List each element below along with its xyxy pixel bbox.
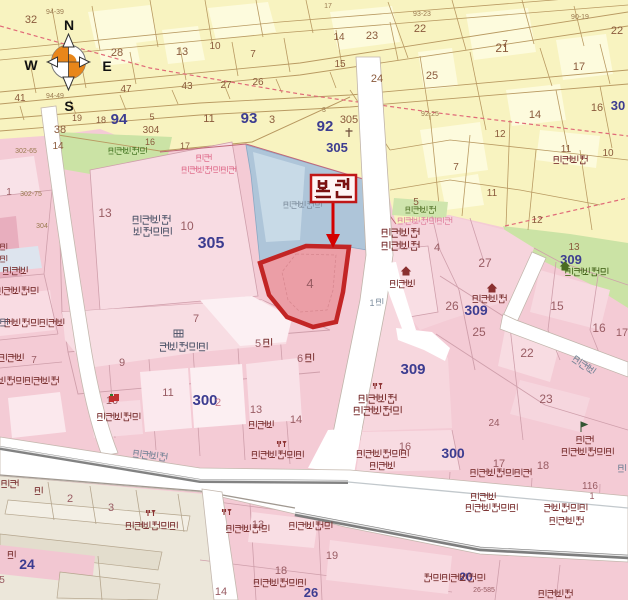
svg-text:22: 22 [414, 23, 426, 35]
svg-text:302-75: 302-75 [20, 191, 42, 198]
svg-text:3: 3 [322, 107, 326, 114]
svg-text:26: 26 [445, 299, 459, 313]
svg-text:300: 300 [192, 392, 217, 409]
svg-text:24: 24 [488, 418, 500, 429]
svg-text:18: 18 [275, 565, 287, 577]
svg-text:2: 2 [215, 397, 221, 409]
svg-text:23: 23 [366, 30, 378, 42]
svg-text:305: 305 [198, 235, 225, 252]
svg-text:24: 24 [19, 556, 35, 572]
svg-text:17: 17 [324, 3, 332, 10]
svg-text:13: 13 [250, 404, 262, 416]
svg-text:16: 16 [592, 321, 606, 335]
svg-text:11: 11 [162, 387, 173, 399]
svg-text:11: 11 [561, 144, 572, 155]
svg-text:2: 2 [67, 493, 73, 505]
svg-text:304: 304 [143, 125, 160, 136]
svg-text:17: 17 [180, 141, 190, 151]
svg-text:5: 5 [0, 575, 5, 586]
svg-text:309: 309 [400, 361, 425, 378]
svg-text:41: 41 [14, 93, 26, 104]
svg-text:26: 26 [252, 77, 264, 88]
svg-text:14: 14 [52, 141, 64, 152]
svg-text:32: 32 [25, 14, 37, 26]
svg-text:25: 25 [472, 325, 486, 339]
svg-text:12: 12 [494, 129, 506, 140]
svg-text:43: 43 [181, 81, 193, 92]
svg-text:16: 16 [145, 137, 155, 147]
svg-text:6: 6 [297, 353, 303, 365]
svg-text:9: 9 [119, 357, 125, 369]
svg-text:38: 38 [54, 124, 66, 136]
svg-text:94-49: 94-49 [46, 93, 64, 100]
svg-text:26-585: 26-585 [473, 587, 495, 594]
svg-text:92-25: 92-25 [421, 111, 439, 118]
svg-text:13: 13 [98, 206, 112, 220]
svg-text:1: 1 [589, 491, 594, 501]
svg-text:7: 7 [193, 313, 199, 325]
svg-text:7: 7 [31, 355, 37, 366]
svg-text:17: 17 [616, 327, 628, 339]
svg-text:12: 12 [531, 215, 543, 226]
svg-text:13: 13 [176, 46, 188, 58]
svg-text:5: 5 [413, 197, 419, 208]
svg-text:W: W [24, 57, 38, 73]
svg-text:3: 3 [269, 114, 275, 126]
svg-text:19: 19 [72, 113, 82, 123]
svg-text:7: 7 [453, 162, 459, 173]
svg-text:22: 22 [520, 346, 534, 360]
svg-text:11: 11 [487, 188, 498, 199]
svg-text:92: 92 [317, 118, 334, 135]
svg-text:304: 304 [36, 223, 48, 230]
svg-text:16: 16 [399, 441, 411, 453]
svg-text:10: 10 [180, 219, 194, 233]
svg-text:16: 16 [591, 102, 603, 114]
svg-text:14: 14 [290, 414, 302, 426]
svg-text:90-19: 90-19 [571, 14, 589, 21]
svg-text:S: S [64, 98, 73, 114]
svg-text:N: N [64, 17, 74, 33]
svg-text:5: 5 [255, 338, 261, 350]
svg-text:93: 93 [241, 110, 258, 127]
svg-text:17: 17 [493, 458, 505, 470]
svg-text:94: 94 [111, 111, 128, 128]
svg-text:5: 5 [149, 112, 154, 122]
svg-text:94-39: 94-39 [46, 9, 64, 16]
svg-text:22: 22 [611, 25, 623, 37]
svg-text:17: 17 [573, 61, 585, 73]
svg-text:305: 305 [326, 140, 348, 155]
svg-text:10: 10 [209, 41, 221, 52]
svg-text:7: 7 [250, 49, 256, 60]
svg-text:7: 7 [502, 39, 508, 50]
svg-text:18: 18 [96, 115, 106, 125]
svg-text:24: 24 [371, 73, 383, 85]
svg-text:47: 47 [120, 84, 132, 95]
svg-text:18: 18 [537, 460, 549, 472]
svg-text:309: 309 [464, 302, 488, 318]
svg-text:14: 14 [215, 586, 227, 598]
svg-text:E: E [102, 58, 111, 74]
svg-text:25: 25 [426, 70, 438, 82]
svg-text:15: 15 [550, 299, 564, 313]
svg-text:26: 26 [304, 585, 318, 600]
svg-text:13: 13 [568, 242, 580, 253]
svg-text:1: 1 [6, 187, 12, 198]
svg-text:15: 15 [334, 59, 346, 70]
svg-text:1: 1 [369, 298, 374, 308]
svg-text:93-23: 93-23 [413, 11, 431, 18]
svg-text:4: 4 [434, 242, 440, 254]
svg-text:27: 27 [478, 256, 492, 270]
svg-text:10: 10 [602, 148, 614, 159]
svg-text:27: 27 [220, 80, 232, 91]
svg-text:23: 23 [539, 392, 553, 406]
svg-text:302-65: 302-65 [15, 148, 37, 155]
svg-text:14: 14 [333, 32, 345, 43]
svg-text:4: 4 [306, 276, 313, 291]
svg-text:11: 11 [203, 113, 214, 125]
svg-text:305: 305 [340, 114, 358, 126]
svg-text:30: 30 [611, 98, 625, 113]
svg-text:19: 19 [326, 550, 338, 562]
svg-text:14: 14 [529, 109, 541, 121]
svg-text:3: 3 [108, 502, 114, 514]
svg-text:28: 28 [111, 47, 123, 59]
svg-text:300: 300 [441, 445, 465, 461]
